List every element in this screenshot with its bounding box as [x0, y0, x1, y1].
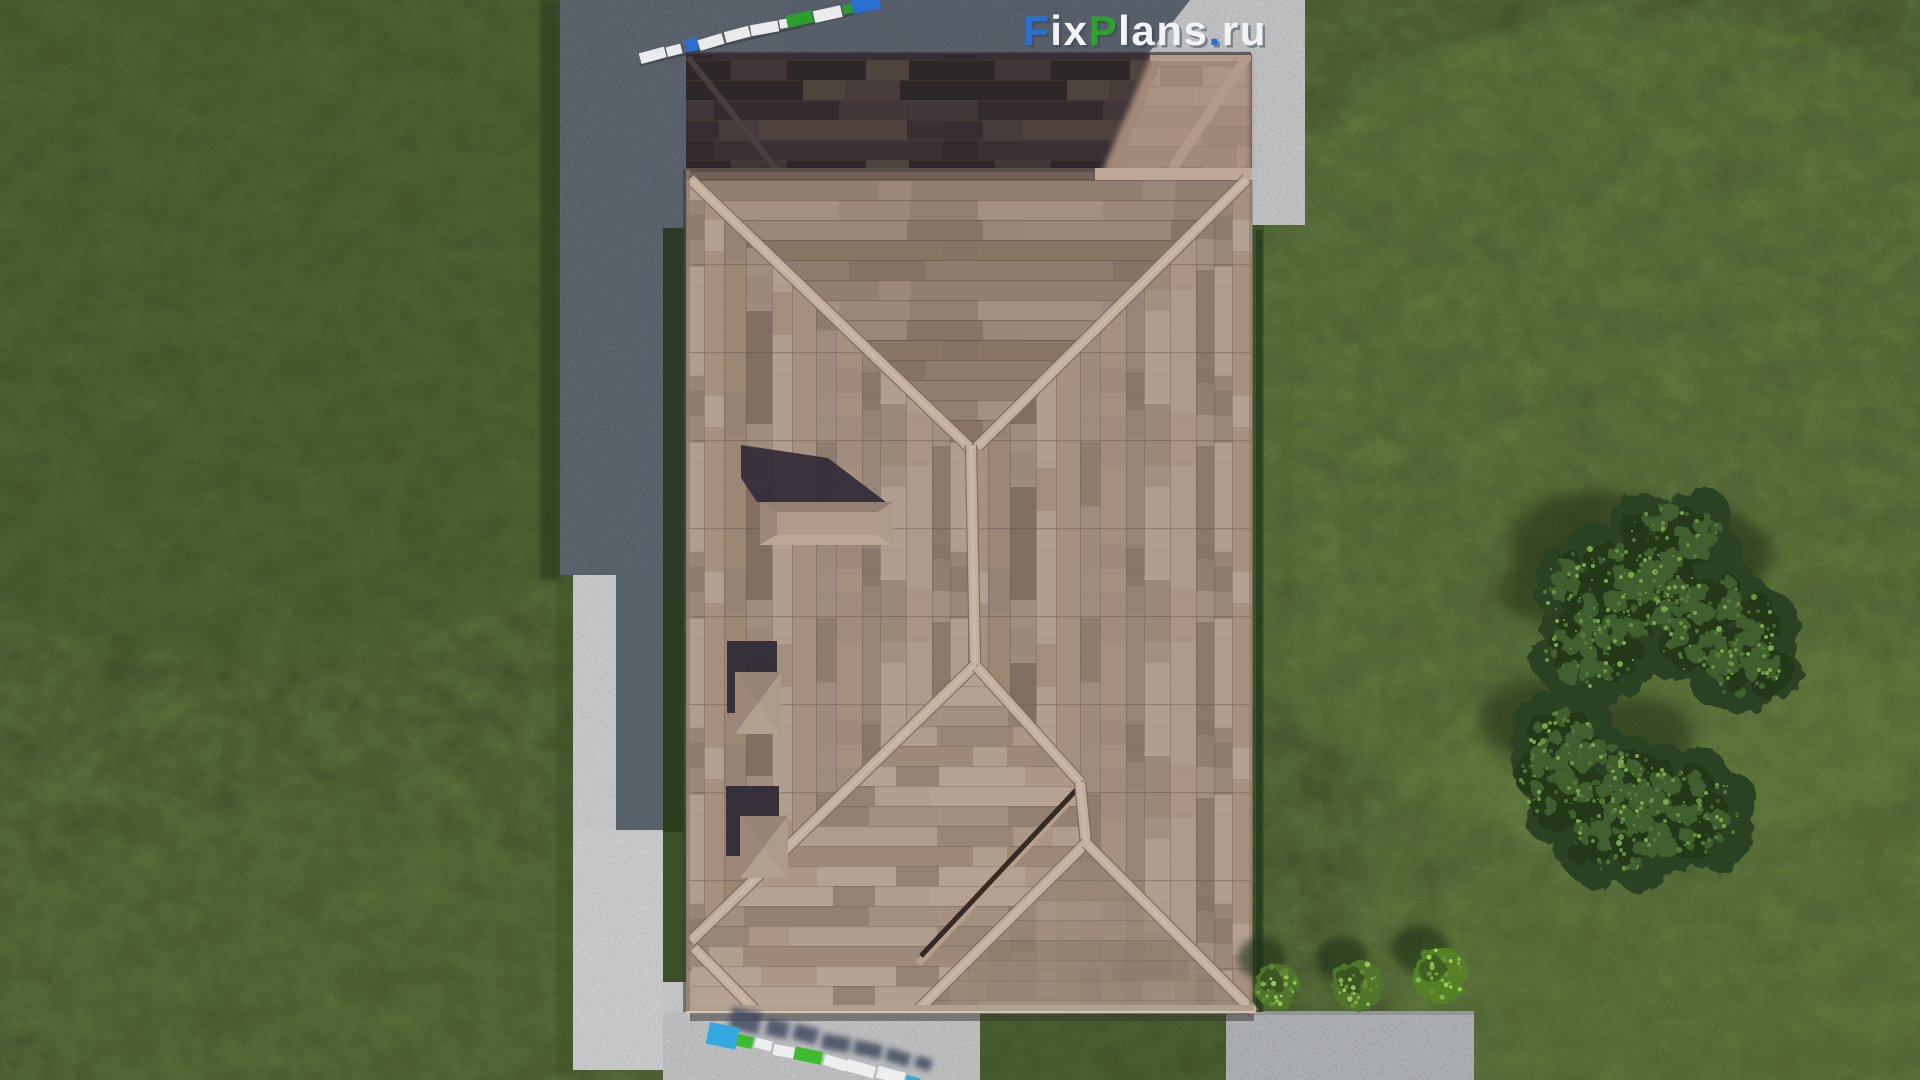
svg-text:FixPlans.ru: FixPlans.ru — [1023, 7, 1267, 54]
